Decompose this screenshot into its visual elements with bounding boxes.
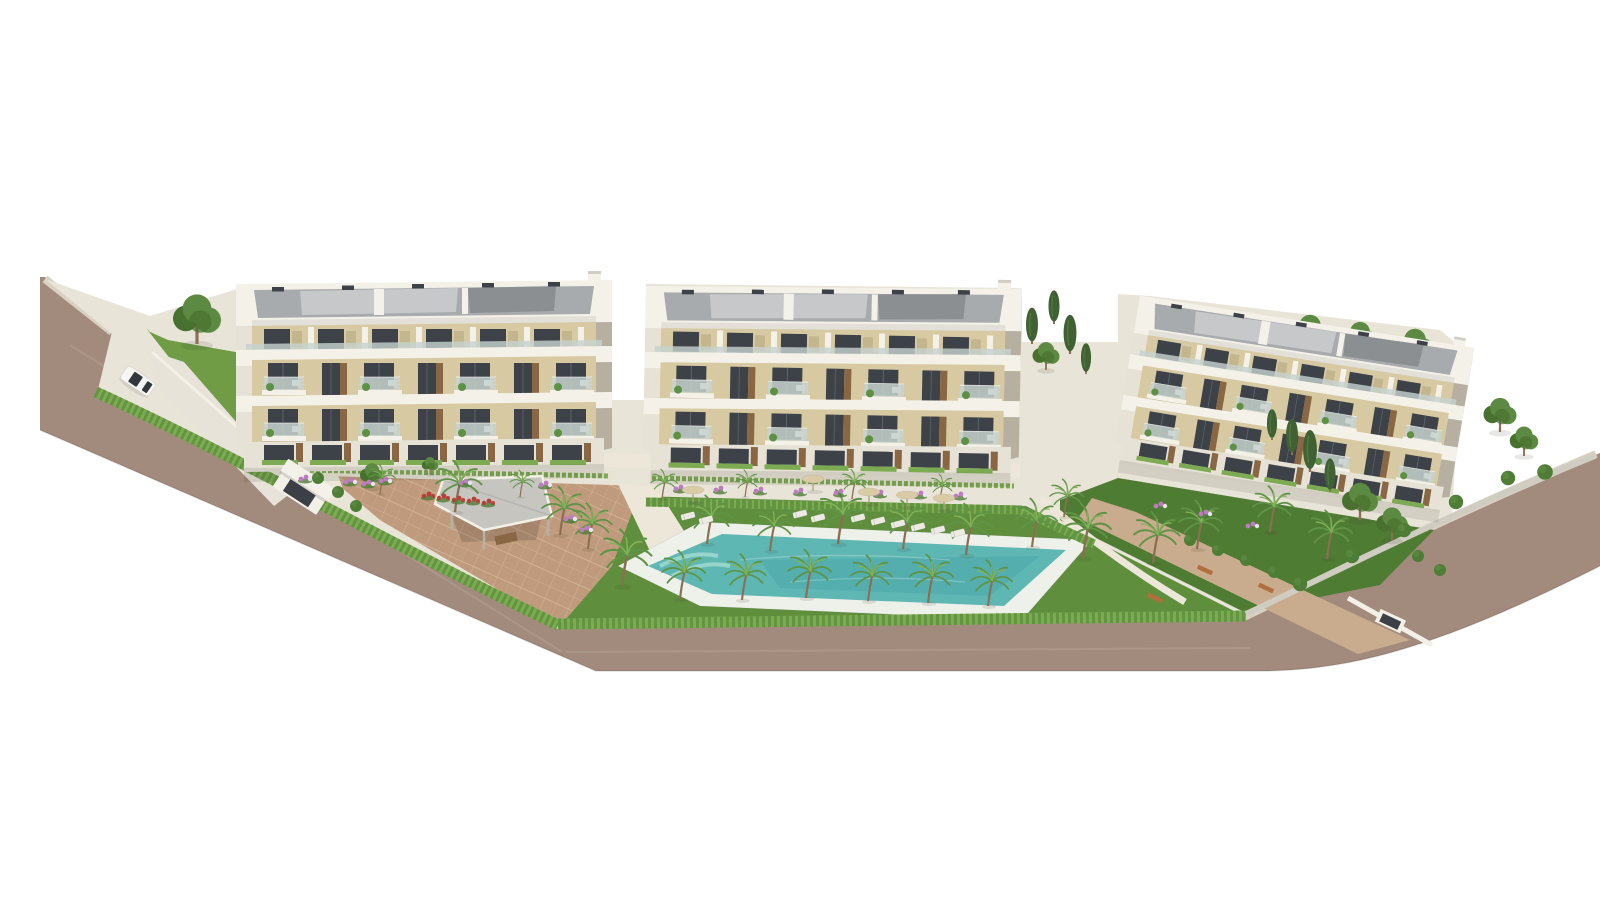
shrub xyxy=(1434,564,1446,576)
shrub xyxy=(1537,464,1553,480)
shrub xyxy=(1184,534,1196,546)
apartment-building-middle xyxy=(642,273,1022,491)
shrub xyxy=(1449,495,1463,509)
shrub xyxy=(312,472,324,484)
shrub xyxy=(1412,550,1424,562)
shrub xyxy=(1345,549,1359,563)
apartment-building-left xyxy=(236,271,612,482)
render-canvas: Aerial 3D architectural rendering of a n… xyxy=(0,0,1600,900)
shrub xyxy=(332,486,344,498)
shrub xyxy=(1501,471,1515,485)
shrub xyxy=(1293,577,1307,591)
shrub xyxy=(1397,523,1411,537)
shrub xyxy=(1268,566,1280,578)
shrub xyxy=(1240,554,1252,566)
shrub xyxy=(350,500,362,512)
sky-gap-left xyxy=(612,282,646,400)
architectural-rendering: Aerial 3D architectural rendering of a n… xyxy=(0,0,1600,900)
shrub xyxy=(1212,544,1224,556)
